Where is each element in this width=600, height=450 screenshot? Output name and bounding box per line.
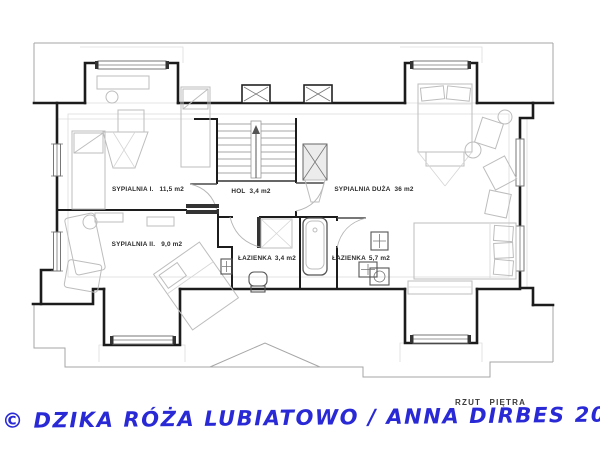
shower: [261, 219, 292, 248]
room-label-hol: HOL3,4 m2: [231, 188, 270, 195]
window-left-1: [51, 144, 63, 176]
door-bathroom-large: [337, 218, 366, 248]
furniture-bedroom-2: [64, 213, 239, 330]
door-bathroom-small: [230, 217, 261, 248]
floor-plan: SYPIALNIA I.11,5 m2 HOL3,4 m2 SYPIALNIA …: [0, 0, 600, 450]
room-label-lazienka-small: ŁAZIENKA3,4 m2: [238, 255, 296, 262]
door-bedroom-2-slider: [186, 204, 219, 214]
installation-shaft: [303, 144, 327, 202]
bed: [154, 242, 239, 330]
stairs: [218, 121, 295, 178]
window-right-2: [516, 226, 524, 271]
radiator: [147, 217, 174, 226]
room-label-lazienka-large: ŁAZIENKA5,7 m2: [332, 255, 390, 262]
bed: [418, 84, 472, 186]
bathtub: [303, 218, 327, 275]
dormer-window-top-center: [410, 61, 471, 69]
dormer-window-bottom-center: [410, 335, 471, 343]
wardrobe: [103, 132, 148, 168]
bathroom-large-fixtures: [303, 218, 389, 285]
bed: [181, 87, 210, 167]
dormer-window-top-left: [95, 61, 169, 69]
exterior-walls: [33, 63, 553, 345]
chaise-lounge: [64, 213, 106, 293]
vent-shaft: [221, 259, 232, 274]
washbasin: [371, 232, 388, 250]
dormer-window-bottom-left: [110, 336, 176, 344]
bench: [408, 281, 472, 294]
chimney: [242, 85, 332, 103]
radiator: [95, 213, 123, 222]
window-left-2: [51, 232, 63, 271]
bed: [72, 131, 105, 209]
room-labels: SYPIALNIA I.11,5 m2 HOL3,4 m2 SYPIALNIA …: [112, 184, 414, 262]
floor-plan-svg: SYPIALNIA I.11,5 m2 HOL3,4 m2 SYPIALNIA …: [0, 0, 600, 450]
double-bed: [414, 223, 516, 279]
desk: [97, 76, 149, 132]
room-label-sypialnia-duza: SYPIALNIA DUŻA36 m2: [334, 184, 414, 193]
room-label-sypialnia-2: SYPIALNIA II.9,0 m2: [112, 241, 183, 248]
room-label-sypialnia-1: SYPIALNIA I.11,5 m2: [112, 186, 184, 193]
